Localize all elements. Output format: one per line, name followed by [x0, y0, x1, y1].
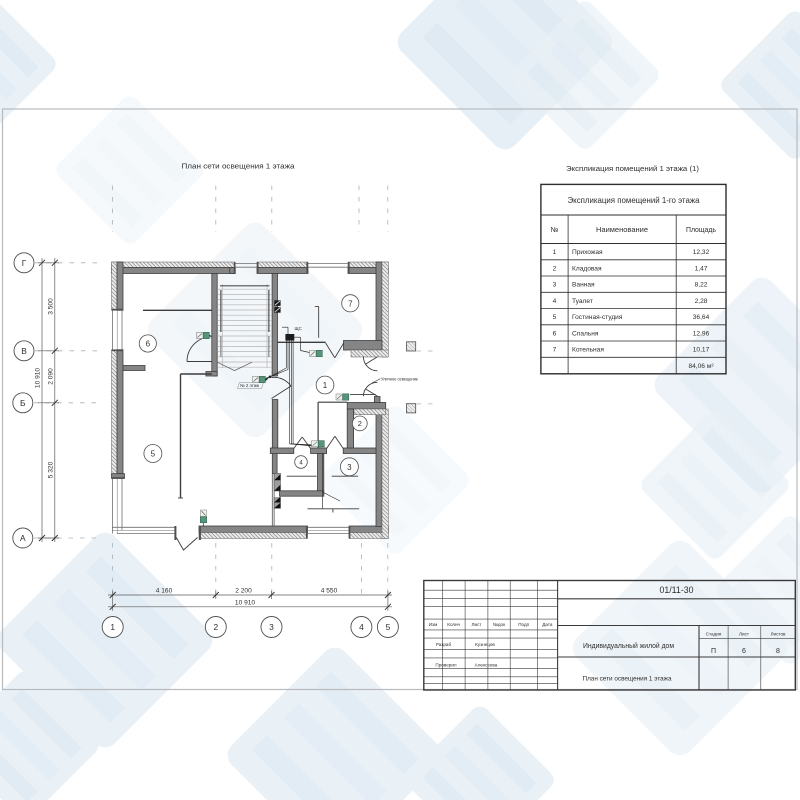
svg-text:1: 1 — [553, 249, 557, 256]
svg-text:6: 6 — [146, 340, 151, 349]
svg-text:01/11-30: 01/11-30 — [659, 585, 693, 595]
svg-text:3: 3 — [347, 463, 352, 472]
svg-text:Лист: Лист — [739, 632, 750, 637]
svg-text:8: 8 — [776, 648, 780, 655]
svg-text:Г: Г — [22, 258, 27, 268]
svg-text:6: 6 — [742, 648, 746, 655]
svg-text:2 200: 2 200 — [235, 587, 252, 594]
svg-text:Лист: Лист — [472, 622, 483, 627]
svg-text:Стадия: Стадия — [706, 632, 722, 637]
svg-text:6: 6 — [553, 330, 557, 337]
svg-text:3: 3 — [269, 622, 274, 632]
svg-text:7: 7 — [553, 347, 557, 354]
svg-text:Проверил: Проверил — [435, 662, 456, 667]
svg-text:План сети освещения 1 этажа: План сети освещения 1 этажа — [182, 162, 296, 171]
svg-text:4 550: 4 550 — [321, 587, 338, 594]
svg-text:5: 5 — [553, 314, 557, 321]
svg-text:Площадь: Площадь — [686, 225, 716, 234]
svg-text:Дата: Дата — [542, 622, 553, 627]
svg-text:Подп: Подп — [518, 622, 529, 627]
svg-text:№док: №док — [493, 622, 506, 627]
svg-text:Кладовая: Кладовая — [572, 265, 602, 272]
svg-text:В: В — [21, 346, 27, 356]
svg-text:А: А — [20, 533, 26, 543]
svg-text:10 910: 10 910 — [235, 599, 256, 606]
svg-text:2: 2 — [358, 419, 362, 428]
svg-text:Кузнецов: Кузнецов — [475, 642, 495, 647]
svg-text:П: П — [711, 648, 716, 655]
svg-text:4: 4 — [359, 622, 364, 632]
svg-text:10,17: 10,17 — [693, 347, 710, 354]
svg-text:7: 7 — [348, 299, 353, 308]
svg-text:3: 3 — [553, 282, 557, 289]
svg-text:Гостиная-студия: Гостиная-студия — [572, 314, 623, 321]
svg-text:2,28: 2,28 — [695, 298, 708, 305]
svg-text:Колич: Колич — [447, 622, 460, 627]
svg-text:12,32: 12,32 — [693, 249, 710, 256]
svg-text:5: 5 — [386, 622, 391, 632]
svg-text:12,96: 12,96 — [693, 330, 710, 337]
svg-text:Спальня: Спальня — [572, 330, 599, 337]
svg-text:Экспликация помещений 1-го эта: Экспликация помещений 1-го этажа — [568, 196, 701, 205]
svg-text:Наименование: Наименование — [596, 225, 648, 234]
svg-text:Индивидуальный жилой дом: Индивидуальный жилой дом — [583, 642, 674, 650]
svg-text:1: 1 — [110, 622, 115, 632]
svg-text:Котельная: Котельная — [572, 347, 604, 354]
svg-text:Разраб: Разраб — [436, 642, 452, 647]
svg-text:1,47: 1,47 — [695, 265, 708, 272]
svg-text:План сети освещения 1 этажа: План сети освещения 1 этажа — [583, 676, 672, 683]
svg-text:ЩС: ЩС — [295, 326, 302, 331]
svg-text:Прихожая: Прихожая — [572, 249, 603, 256]
svg-text:Б: Б — [20, 398, 26, 408]
svg-text:Экспликация помещений 1 этажа: Экспликация помещений 1 этажа (1) — [566, 164, 699, 173]
svg-text:2: 2 — [213, 622, 218, 632]
svg-text:Туалет: Туалет — [572, 298, 593, 305]
svg-text:4 160: 4 160 — [156, 587, 173, 594]
svg-text:4: 4 — [553, 298, 557, 305]
svg-text:Ванная: Ванная — [572, 282, 595, 289]
svg-text:1: 1 — [323, 381, 328, 390]
svg-text:Уличное освещение: Уличное освещение — [381, 376, 418, 381]
svg-text:3 500: 3 500 — [47, 298, 54, 315]
svg-text:№: № — [551, 225, 559, 234]
svg-text:5 320: 5 320 — [47, 461, 54, 478]
svg-text:2 090: 2 090 — [47, 368, 54, 385]
svg-text:84,06 м²: 84,06 м² — [688, 363, 714, 370]
svg-text:Изм: Изм — [429, 622, 438, 627]
svg-text:8,22: 8,22 — [695, 282, 708, 289]
svg-text:Листов: Листов — [771, 632, 786, 637]
svg-text:10 910: 10 910 — [35, 368, 42, 389]
svg-text:2: 2 — [553, 265, 557, 272]
svg-text:36,64: 36,64 — [693, 314, 710, 321]
svg-text:5: 5 — [151, 450, 156, 459]
svg-text:Алексеева: Алексеева — [475, 662, 498, 667]
svg-text:№ 2 этаж: № 2 этаж — [240, 383, 259, 388]
